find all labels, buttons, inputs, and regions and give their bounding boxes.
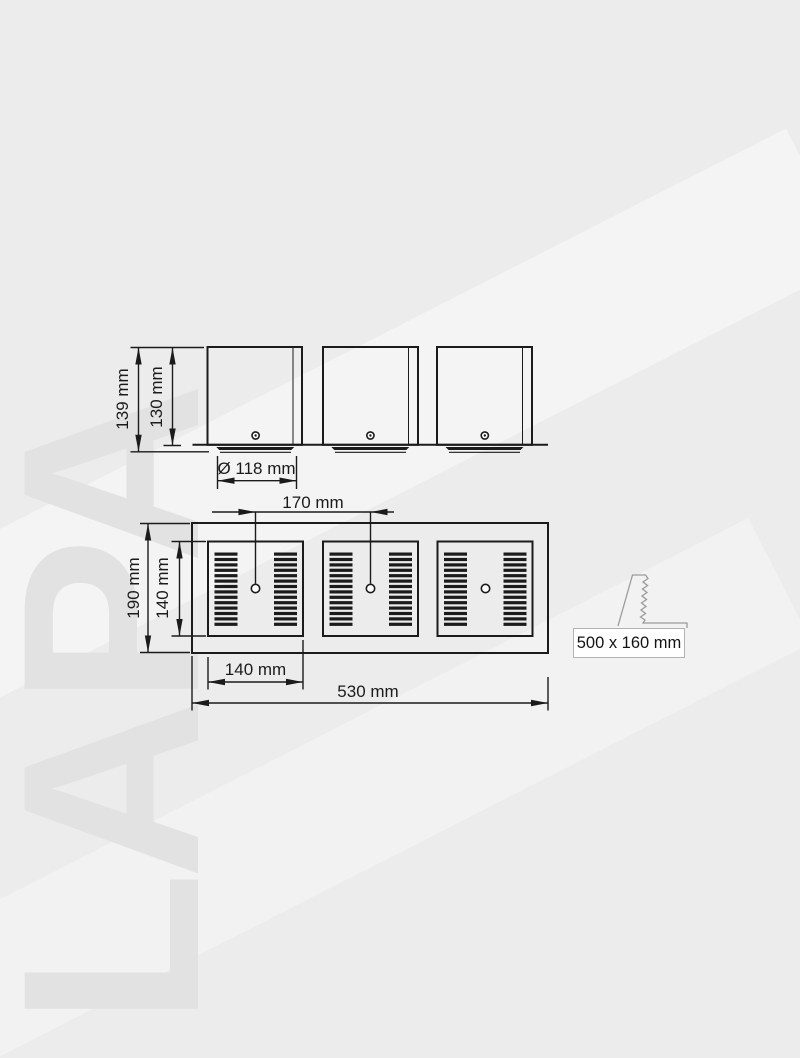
canopy-plate-2 xyxy=(331,447,409,450)
arrowhead xyxy=(176,619,182,636)
canopy-plates xyxy=(216,447,523,450)
side-view xyxy=(131,347,549,489)
dim-cutout-depth xyxy=(172,542,207,637)
plan-view xyxy=(140,509,548,711)
recess-callout xyxy=(618,575,687,628)
dim-canopy-diameter-label: Ø 118 mm xyxy=(217,460,295,478)
recess-size-label: 500 x 160 mm xyxy=(577,634,682,653)
canopy-plate-1 xyxy=(216,447,294,450)
arrowhead xyxy=(286,679,303,685)
arrowhead xyxy=(192,700,209,706)
arrowhead xyxy=(145,636,151,653)
dim-cutout-depth-label: 140 mm xyxy=(154,557,172,618)
mounting-hole-2 xyxy=(366,584,374,592)
fixture-body-1 xyxy=(208,347,303,445)
dim-body-height-label: 130 mm xyxy=(148,366,166,427)
arrowhead xyxy=(208,679,225,685)
arrowhead xyxy=(145,524,151,541)
dim-total-height-label: 139 mm xyxy=(114,368,132,429)
arrowhead xyxy=(135,348,141,365)
screw-icons xyxy=(252,432,488,439)
mounting-hole-1 xyxy=(251,584,259,592)
mounting-hole-3 xyxy=(481,584,489,592)
canopy-plate-3 xyxy=(446,447,524,450)
arrowhead xyxy=(371,509,388,515)
arrowhead xyxy=(239,509,256,515)
arrowhead xyxy=(218,478,235,484)
technical-drawing xyxy=(0,0,800,1058)
dim-center-spacing-label: 170 mm xyxy=(282,494,343,512)
dim-plate-depth-label: 190 mm xyxy=(125,557,143,618)
dim-cutout-width-label: 140 mm xyxy=(225,661,286,679)
arrowhead xyxy=(169,348,175,365)
dim-plate-width-label: 530 mm xyxy=(337,683,398,701)
arrowhead xyxy=(531,700,548,706)
arrowhead xyxy=(176,542,182,559)
arrowhead xyxy=(135,435,141,452)
dim-body-height xyxy=(164,348,182,446)
fixture-body-3 xyxy=(437,347,532,445)
fixture-body-2 xyxy=(323,347,418,445)
drawing-canvas: LAPA xyxy=(0,0,800,1058)
recess-profile-icon xyxy=(618,575,687,628)
arrowhead xyxy=(169,429,175,446)
recess-size-label-box: 500 x 160 mm xyxy=(573,628,685,658)
arrowhead xyxy=(280,478,297,484)
fixture-edge-seams xyxy=(293,347,523,444)
